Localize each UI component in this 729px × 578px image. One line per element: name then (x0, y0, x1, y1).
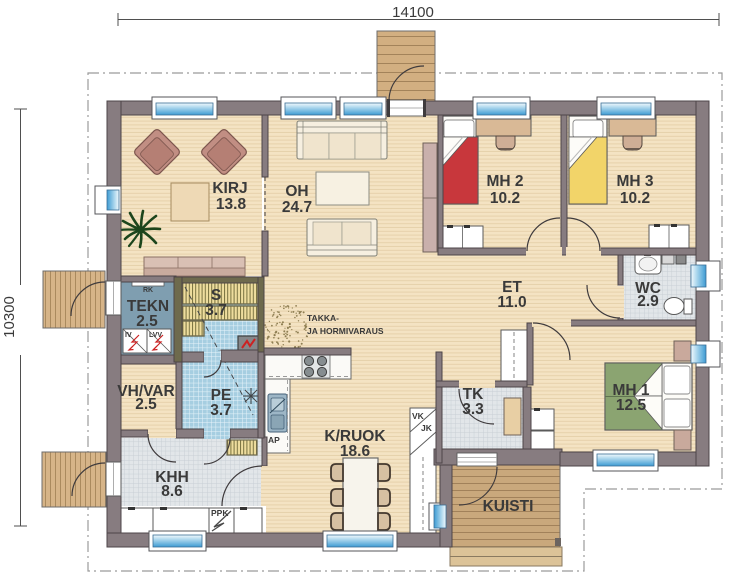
svg-text:12.5: 12.5 (616, 397, 647, 414)
svg-text:18.6: 18.6 (340, 443, 371, 460)
svg-text:RK: RK (143, 287, 153, 294)
svg-text:10300: 10300 (1, 296, 18, 338)
svg-text:PPK: PPK (211, 508, 229, 518)
svg-text:MH 3: MH 3 (616, 173, 653, 190)
svg-text:3.7: 3.7 (205, 302, 227, 319)
svg-text:VK: VK (412, 411, 425, 421)
svg-text:2.9: 2.9 (637, 293, 659, 310)
svg-text:3.3: 3.3 (462, 401, 484, 418)
svg-text:10.2: 10.2 (490, 190, 520, 207)
svg-text:IV: IV (125, 332, 132, 339)
svg-text:8.6: 8.6 (161, 483, 183, 500)
svg-text:2.5: 2.5 (136, 313, 158, 330)
svg-text:3.7: 3.7 (210, 402, 232, 419)
svg-text:LVV: LVV (149, 332, 162, 339)
svg-text:OH: OH (285, 183, 308, 200)
svg-text:KIRJ: KIRJ (212, 180, 247, 197)
svg-text:24.7: 24.7 (282, 199, 312, 216)
svg-text:13.8: 13.8 (216, 196, 247, 213)
svg-text:JA HORMIVARAUS: JA HORMIVARAUS (307, 326, 384, 336)
svg-text:KUISTI: KUISTI (483, 498, 534, 515)
svg-text:MH 2: MH 2 (486, 173, 523, 190)
svg-text:TAKKA-: TAKKA- (307, 313, 339, 323)
svg-text:2.5: 2.5 (135, 396, 157, 413)
svg-text:11.0: 11.0 (497, 294, 526, 311)
svg-text:JK: JK (421, 423, 433, 433)
svg-text:AP: AP (268, 435, 280, 445)
svg-text:14100: 14100 (392, 4, 434, 21)
svg-text:10.2: 10.2 (620, 190, 650, 207)
